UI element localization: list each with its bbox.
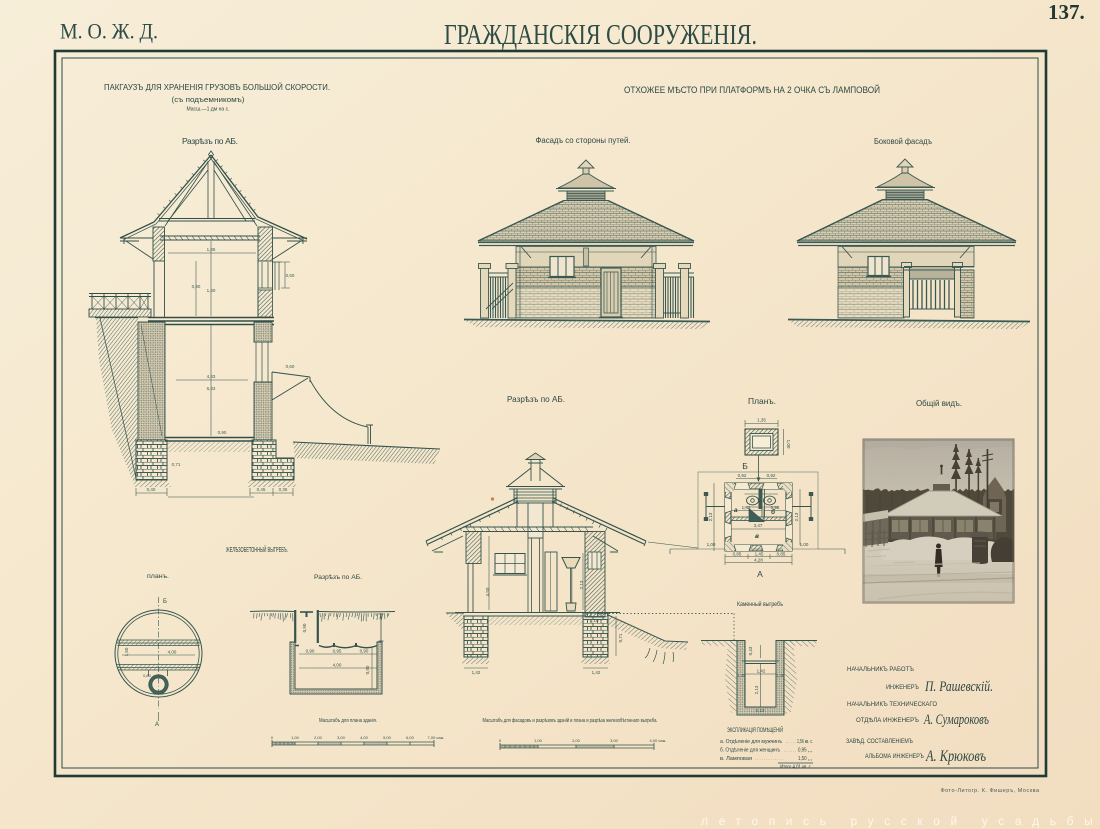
svg-text:3,00: 3,00	[337, 735, 346, 740]
svg-text:2,13: 2,13	[756, 708, 765, 713]
svg-text:ОТХОЖЕЕ МѢСТО ПРИ ПЛАТФОРМѢ НА: ОТХОЖЕЕ МѢСТО ПРИ ПЛАТФОРМѢ НА 2 ОЧКА СЪ…	[624, 84, 880, 95]
svg-text:0,85: 0,85	[733, 552, 742, 557]
svg-text:0,40: 0,40	[147, 487, 156, 492]
svg-text:А. Крюковъ: А. Крюковъ	[925, 748, 986, 765]
svg-text:1,56 кв. с.: 1,56 кв. с.	[797, 739, 813, 745]
svg-text:0,85: 0,85	[777, 552, 786, 557]
svg-text:НАЧАЛЬНИКЪ РАБОТЪ: НАЧАЛЬНИКЪ РАБОТЪ	[847, 666, 914, 673]
svg-text:П. Рашевскій.: П. Рашевскій.	[924, 679, 993, 695]
svg-text:Б: Б	[742, 461, 748, 471]
svg-text:1,00: 1,00	[707, 542, 716, 547]
svg-text:ЖЕЛѢЗОБЕТОННЫЙ ВЫГРЕБЪ.: ЖЕЛѢЗОБЕТОННЫЙ ВЫГРЕБЪ.	[226, 545, 288, 554]
svg-text:НАЧАЛЬНИКЪ ТЕХНИЧЕСКАГО: НАЧАЛЬНИКЪ ТЕХНИЧЕСКАГО	[847, 701, 937, 708]
svg-text:0,90: 0,90	[365, 665, 370, 674]
svg-text:Разрѣзъ по АБ.: Разрѣзъ по АБ.	[507, 394, 565, 404]
svg-text:0,35: 0,35	[776, 673, 785, 678]
svg-text:Разрѣзъ по АБ.: Разрѣзъ по АБ.	[314, 575, 362, 581]
svg-text:0,45: 0,45	[257, 487, 266, 492]
svg-text:ЗАВѢД. СОСТАВЛЕНІЕМЪ: ЗАВѢД. СОСТАВЛЕНІЕМЪ	[846, 738, 913, 745]
svg-text:летопись русской усадьбы: летопись русской усадьбы	[701, 814, 1100, 828]
svg-text:2,13: 2,13	[579, 580, 584, 589]
svg-text:1,40: 1,40	[207, 288, 216, 293]
svg-text:2,13: 2,13	[754, 685, 759, 694]
svg-text:6,33: 6,33	[207, 386, 216, 391]
svg-text:Общій видъ.: Общій видъ.	[916, 398, 962, 408]
svg-text:Планъ.: Планъ.	[748, 396, 776, 406]
svg-text:. . . . . . .: . . . . . . .	[784, 748, 798, 753]
svg-text:0,92: 0,92	[738, 473, 747, 478]
svg-text:А: А	[155, 722, 159, 728]
svg-text:ИНЖЕНЕРЪ: ИНЖЕНЕРЪ	[886, 684, 919, 691]
svg-text:4,00 саж.: 4,00 саж.	[650, 738, 667, 743]
svg-text:0,71: 0,71	[618, 633, 623, 642]
svg-text:Б: Б	[163, 599, 167, 605]
svg-text:0,90: 0,90	[360, 649, 369, 654]
svg-text:а. Отдѣленіе для мужчинъ: а. Отдѣленіе для мужчинъ	[720, 739, 782, 745]
svg-text:4,28: 4,28	[754, 558, 763, 563]
svg-text:ОТДѢЛА ИНЖЕНЕРЪ: ОТДѢЛА ИНЖЕНЕРЪ	[856, 717, 919, 724]
svg-text:1,00: 1,00	[800, 542, 809, 547]
svg-text:0,95: 0,95	[333, 649, 342, 654]
svg-text:1,35: 1,35	[757, 418, 766, 423]
svg-text:А. Сумароковъ: А. Сумароковъ	[923, 712, 989, 728]
svg-text:Итого 4,01 кв. с.: Итого 4,01 кв. с.	[780, 765, 812, 771]
svg-text:ЭКСПЛИКАЦІЯ ПОМѢЩЕНІЙ: ЭКСПЛИКАЦІЯ ПОМѢЩЕНІЙ	[727, 726, 783, 734]
svg-text:2,00: 2,00	[314, 735, 323, 740]
svg-text:Фасадъ со стороны путей.: Фасадъ со стороны путей.	[536, 135, 631, 145]
svg-text:0,90: 0,90	[302, 623, 307, 632]
svg-text:0,90: 0,90	[306, 649, 315, 654]
svg-text:2,13: 2,13	[794, 512, 799, 521]
svg-text:1,42: 1,42	[742, 505, 751, 510]
svg-text:Масштабъ для плана зданія.: Масштабъ для плана зданія.	[319, 718, 377, 724]
svg-text:5,00: 5,00	[383, 735, 392, 740]
svg-text:7,00 саж.: 7,00 саж.	[428, 735, 445, 740]
svg-text:1,45: 1,45	[755, 552, 764, 557]
svg-text:1,00: 1,00	[291, 735, 300, 740]
svg-text:ГРАЖДАНСКІЯ СООРУЖЕНІЯ.: ГРАЖДАНСКІЯ СООРУЖЕНІЯ.	[444, 19, 757, 51]
svg-text:1,00: 1,00	[534, 738, 543, 743]
svg-text:0,35: 0,35	[737, 673, 746, 678]
svg-text:0,80: 0,80	[143, 673, 152, 678]
svg-text:0,50: 0,50	[286, 273, 295, 278]
svg-text:0,90: 0,90	[218, 430, 227, 435]
svg-text:1,42: 1,42	[592, 670, 601, 675]
svg-text:0,92: 0,92	[767, 473, 776, 478]
svg-text:3,47: 3,47	[754, 523, 763, 528]
svg-text:2,00: 2,00	[572, 738, 581, 743]
svg-text:0,71: 0,71	[172, 462, 181, 467]
svg-text:0,90: 0,90	[192, 284, 201, 289]
svg-text:ПАКГАУЗЪ ДЛЯ ХРАНЕНІЯ ГРУЗОВЪ: ПАКГАУЗЪ ДЛЯ ХРАНЕНІЯ ГРУЗОВЪ БОЛЬШОЙ СК…	[104, 81, 330, 92]
svg-text:Масштабъ для фасадовъ и разрѣз: Масштабъ для фасадовъ и разрѣзовъ зданій…	[483, 717, 658, 724]
svg-text:0,60: 0,60	[155, 683, 164, 688]
svg-text:М. О. Ж. Д.: М. О. Ж. Д.	[60, 19, 158, 44]
svg-text:1,00: 1,00	[786, 440, 791, 449]
svg-text:4,50: 4,50	[485, 587, 490, 596]
svg-text:(съ подъемникомъ): (съ подъемникомъ)	[172, 95, 246, 104]
svg-text:1,85: 1,85	[207, 247, 216, 252]
svg-text:0,43: 0,43	[748, 646, 753, 655]
svg-text:Фото-Литогр. К. Фишеръ, Москва: Фото-Литогр. К. Фишеръ, Москва	[940, 788, 1040, 794]
svg-text:1,50: 1,50	[124, 647, 129, 656]
svg-text:Каменный выгребъ: Каменный выгребъ	[737, 600, 783, 608]
svg-text:4,00: 4,00	[333, 663, 342, 668]
svg-text:. . . . . . . . . . . . .: . . . . . . . . . . . . .	[755, 756, 783, 761]
svg-text:1,42: 1,42	[757, 669, 766, 674]
svg-text:4,33: 4,33	[207, 374, 216, 379]
svg-text:в: в	[755, 533, 759, 540]
svg-text:4,00: 4,00	[360, 735, 369, 740]
svg-text:0,98: 0,98	[771, 505, 780, 510]
svg-text:в. Ламповая: в. Ламповая	[720, 756, 752, 762]
svg-text:3,00: 3,00	[610, 738, 619, 743]
svg-text:б. Отдѣленіе для женщинъ: б. Отдѣленіе для женщинъ	[720, 748, 780, 754]
svg-text:6,00: 6,00	[406, 735, 415, 740]
svg-text:1,10: 1,10	[590, 618, 599, 623]
svg-text:Масш.—1 дм на с.: Масш.—1 дм на с.	[187, 107, 230, 113]
svg-text:0,60: 0,60	[286, 364, 295, 369]
svg-text:2,13: 2,13	[708, 512, 713, 521]
svg-text:4,00: 4,00	[168, 650, 177, 655]
svg-text:Боковой фасадъ: Боковой фасадъ	[874, 136, 932, 146]
svg-text:1,50 „ „: 1,50 „ „	[798, 756, 812, 762]
svg-text:0,95 „ „: 0,95 „ „	[798, 748, 812, 754]
svg-text:АЛЬБОМА ИНЖЕНЕРЪ: АЛЬБОМА ИНЖЕНЕРЪ	[865, 753, 924, 760]
svg-text:Разрѣзъ по АБ.: Разрѣзъ по АБ.	[182, 136, 238, 146]
svg-text:планъ.: планъ.	[147, 574, 169, 580]
svg-text:А: А	[757, 569, 763, 579]
svg-text:137.: 137.	[1048, 0, 1085, 24]
svg-text:1,42: 1,42	[472, 670, 481, 675]
svg-text:0,35: 0,35	[279, 487, 288, 492]
